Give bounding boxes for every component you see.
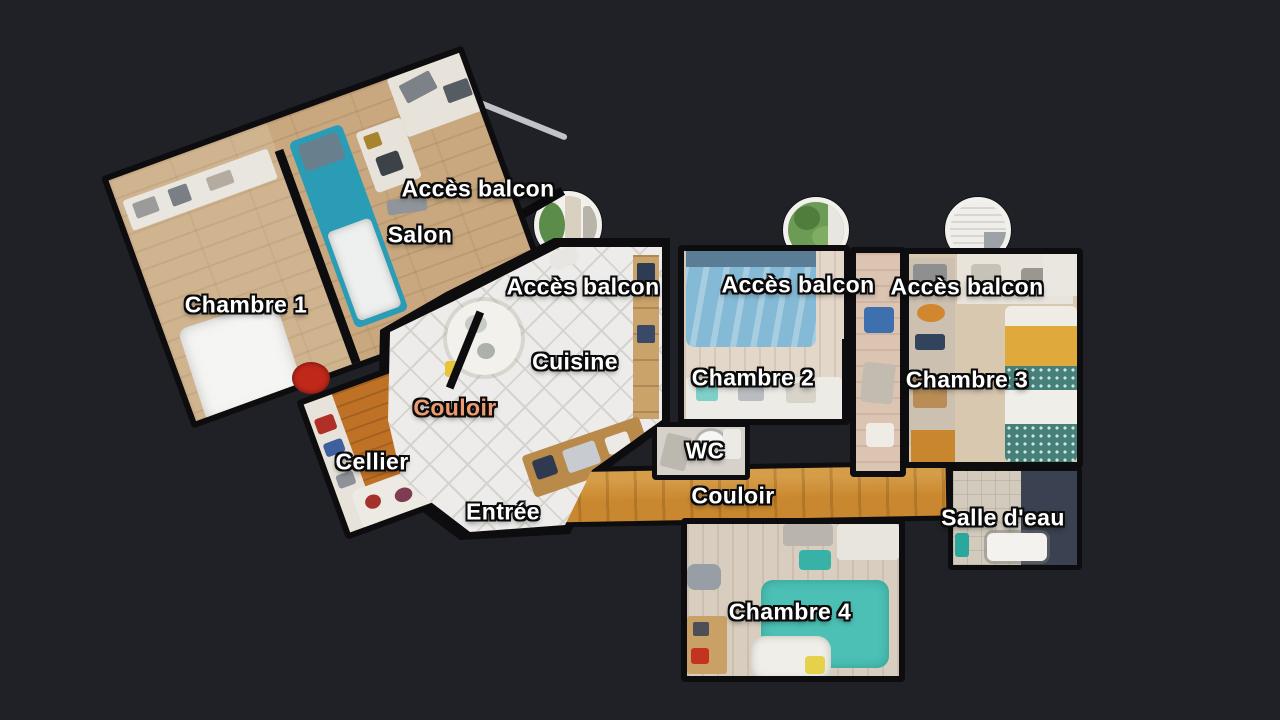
clutter (132, 196, 160, 219)
clutter (363, 131, 383, 150)
interior-wall (842, 339, 850, 425)
desk (687, 616, 727, 674)
shower-tray (987, 533, 1047, 561)
tree-icon (794, 206, 820, 230)
pillow (1005, 306, 1077, 326)
label-cuisine: Cuisine (532, 349, 618, 376)
label-cellier: Cellier (335, 449, 408, 476)
chair (687, 564, 721, 590)
label-chambre4: Chambre 4 (729, 599, 851, 626)
clutter (783, 524, 833, 546)
toilet-tank (723, 429, 741, 459)
clutter (799, 550, 831, 570)
curtain (1043, 254, 1077, 296)
clutter (363, 492, 383, 511)
clutter (805, 656, 825, 674)
label-salon: Salon (388, 222, 453, 249)
clutter (864, 307, 894, 333)
clutter (206, 169, 235, 191)
label-chambre3: Chambre 3 (906, 367, 1028, 394)
clutter (915, 334, 945, 350)
label-couloir-nuit: Couloir (691, 483, 774, 510)
label-salle-deau: Salle d'eau (941, 505, 1065, 532)
headboard (686, 251, 816, 267)
floral-blanket (1005, 424, 1077, 462)
label-wc: WC (685, 438, 724, 465)
clutter (866, 423, 894, 447)
hat (917, 304, 945, 322)
clutter (637, 325, 655, 343)
clutter (860, 361, 896, 404)
clutter (314, 413, 338, 435)
duvet (1005, 390, 1077, 424)
clutter (693, 622, 709, 636)
bucket (955, 533, 969, 557)
clutter (167, 183, 192, 207)
label-chambre1: Chambre 1 (185, 292, 307, 319)
clutter (531, 454, 558, 480)
desk (387, 49, 492, 138)
bed-chambre2 (686, 251, 816, 347)
label-acces-balcon-salon: Accès balcon (401, 176, 554, 203)
label-chambre2: Chambre 2 (692, 365, 814, 392)
label-acces-balcon-ch3: Accès balcon (890, 274, 1043, 301)
clutter (393, 485, 415, 504)
balcony-wall (583, 206, 599, 242)
label-acces-balcon-cuisine: Accès balcon (506, 274, 659, 301)
label-couloir-jour: Couloir (413, 395, 496, 422)
monitor (398, 70, 437, 104)
label-acces-balcon-ch2: Accès balcon (721, 272, 874, 299)
label-entree: Entrée (466, 499, 540, 526)
clutter (442, 78, 473, 104)
door-threshold (911, 430, 955, 468)
pillow (297, 132, 346, 173)
chair (477, 343, 495, 359)
floorplan-scene: Accès balcon Salon Chambre 1 Accès balco… (0, 0, 1280, 720)
clutter (691, 648, 709, 664)
clutter (375, 150, 404, 177)
red-chair (292, 362, 330, 394)
clutter (837, 524, 899, 560)
yellow-blanket (1005, 326, 1077, 366)
